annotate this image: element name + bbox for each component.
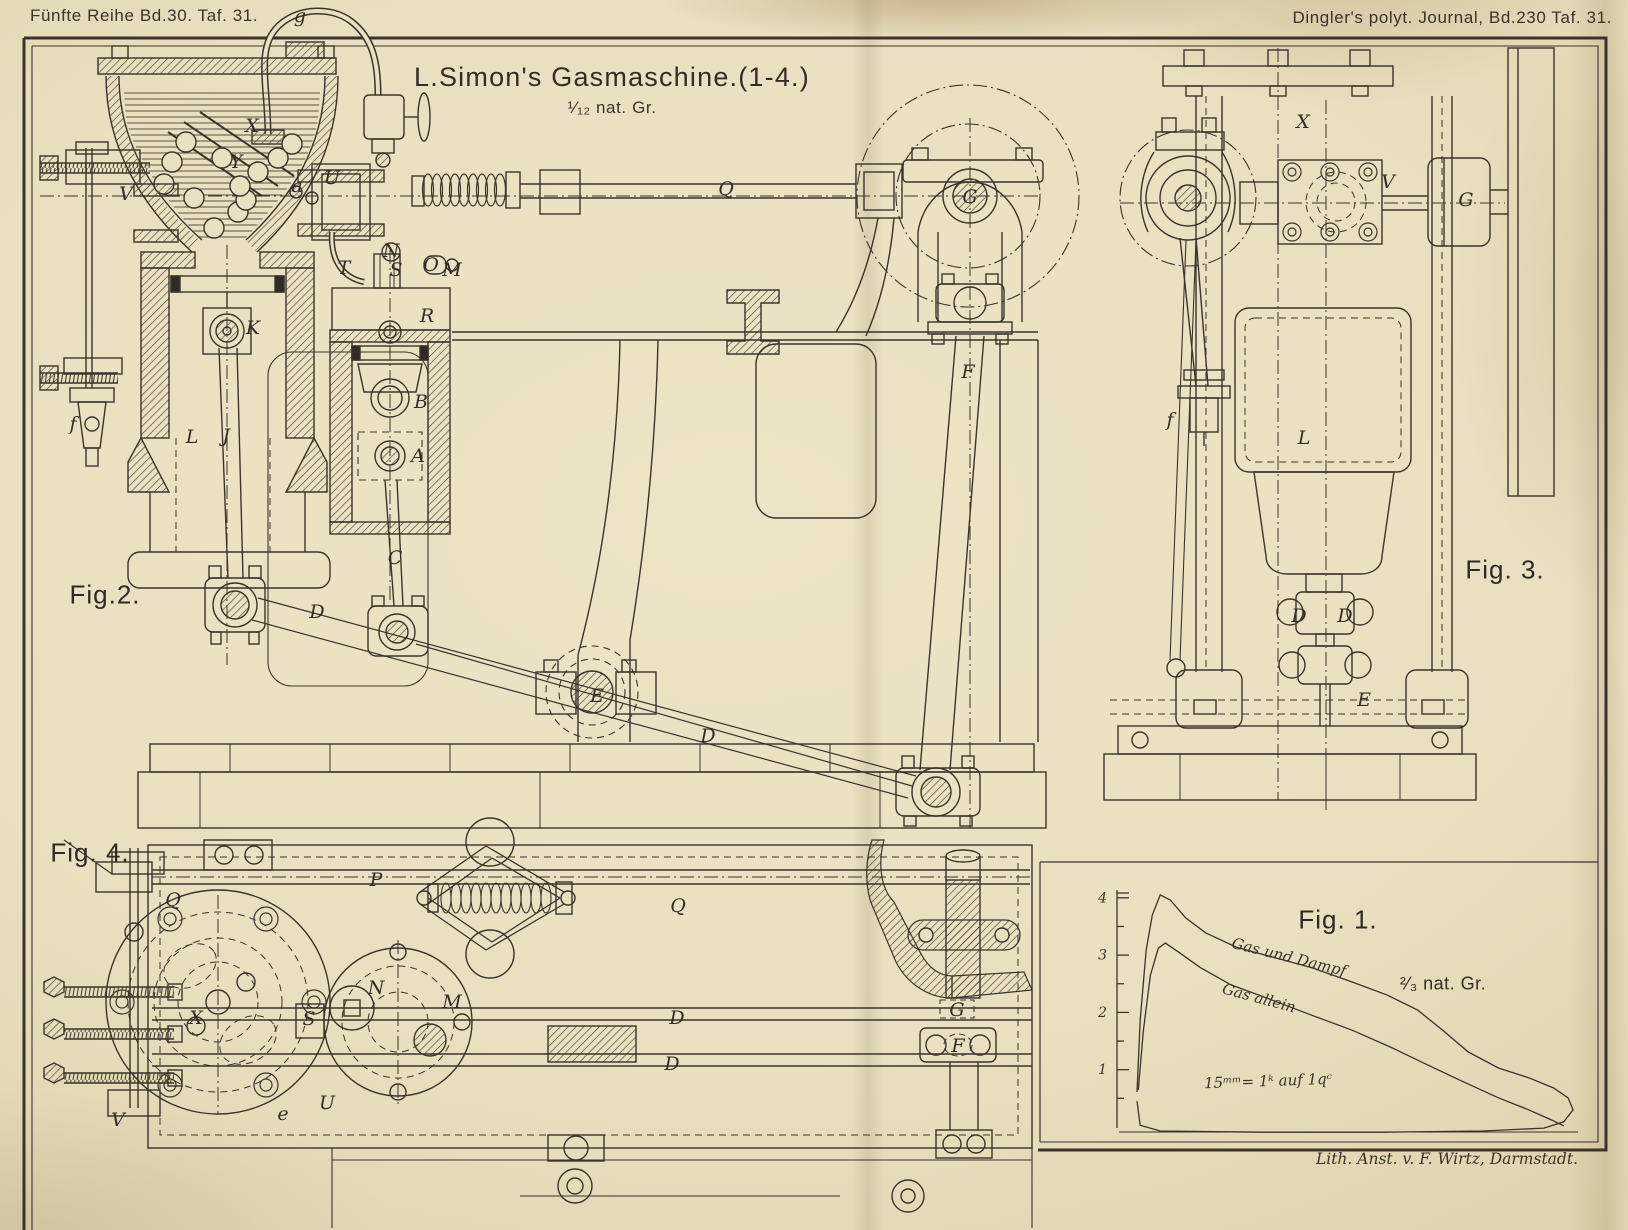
part-label-fig2-T: T (338, 257, 351, 279)
part-label-fig4-N: N (368, 977, 385, 999)
part-label-fig2-g: g (294, 5, 306, 27)
text-layer: Fünfte Reihe Bd.30. Taf. 31. Dingler's p… (0, 0, 1628, 1230)
header-left: Fünfte Reihe Bd.30. Taf. 31. (30, 6, 258, 26)
part-label-fig3-V: V (1381, 171, 1395, 193)
part-label-fig4-S: S (302, 1008, 315, 1030)
part-label-fig2-L: L (186, 426, 199, 448)
part-label-fig3-L: L (1298, 427, 1311, 449)
part-label-fig2-J: J (222, 425, 230, 447)
figure-label-fig1: Fig. 1. (1298, 905, 1377, 936)
part-label-fig3-f: f (1166, 409, 1173, 431)
part-label-fig2-S: S (389, 259, 402, 281)
part-label-fig2-Q: Q (718, 178, 734, 200)
part-label-fig2-F: F (961, 361, 974, 383)
part-label-fig2-V: V (119, 183, 133, 205)
part-label-fig2-C: C (388, 547, 403, 569)
part-label-fig4-e: e (277, 1103, 288, 1125)
fig1-pressure-note: 15ᵐᵐ= 1ᵏ auf 1qᶜ (1204, 1070, 1333, 1092)
part-label-fig2-G: G (962, 186, 977, 208)
plate-title-scale: ¹⁄₁₂ nat. Gr. (567, 98, 656, 118)
part-label-fig2-M: M (442, 259, 461, 281)
part-label-fig4-Q: Q (165, 889, 181, 911)
curve-label-0: Gas und Dampf (1230, 934, 1348, 980)
lithograph-plate: { "plate": { "header_left": "Fünfte Reih… (0, 0, 1628, 1230)
part-label-fig3-E: E (1357, 689, 1371, 711)
part-label-fig3-X: X (1296, 111, 1310, 133)
part-label-fig3-D: D (1291, 605, 1306, 627)
header-right: Dingler's polyt. Journal, Bd.230 Taf. 31… (1292, 8, 1612, 28)
part-label-fig2-R: R (420, 305, 434, 327)
part-label-fig2-a: a (291, 175, 302, 197)
curve-label-1: Gas allein (1220, 980, 1297, 1017)
part-label-fig4-Q: Q (670, 895, 686, 917)
part-label-fig4-D: D (669, 1007, 684, 1029)
part-label-fig3-D: D (1337, 605, 1352, 627)
part-label-fig2-f: f (69, 413, 76, 435)
part-label-fig2-A: A (411, 445, 425, 467)
part-label-fig4-X: X (189, 1007, 203, 1029)
part-label-fig4-P: P (370, 869, 383, 891)
part-label-fig3-G: G (1458, 189, 1473, 211)
part-label-fig2-B: B (414, 391, 428, 413)
part-label-fig4-U: U (319, 1092, 335, 1114)
part-label-fig2-E: E (590, 685, 604, 707)
part-label-fig2-D: D (700, 725, 715, 747)
part-label-fig2-U: U (324, 167, 340, 189)
part-label-fig4-F: F (951, 1035, 964, 1057)
part-label-fig2-K: K (246, 317, 260, 339)
part-label-fig2-Y: Y (230, 151, 243, 173)
part-label-fig4-M: M (442, 991, 461, 1013)
part-label-fig4-D: D (664, 1053, 679, 1075)
part-label-fig4-G: G (949, 999, 964, 1021)
plate-title: L.Simon's Gasmaschine.(1-4.) (414, 62, 810, 93)
figure-label-fig3: Fig. 3. (1465, 555, 1544, 586)
part-label-fig4-V: V (111, 1109, 125, 1131)
fig1-scale-note: ²⁄₃ nat. Gr. (1400, 974, 1486, 995)
figure-label-fig2: Fig.2. (69, 580, 140, 611)
figure-label-fig4: Fig. 4. (50, 838, 129, 869)
part-label-fig2-X: X (245, 115, 259, 137)
lithographer-credit: Lith. Anst. v. F. Wirtz, Darmstadt. (1316, 1150, 1578, 1168)
part-label-fig2-D: D (309, 601, 324, 623)
part-label-fig2-O: O (423, 254, 439, 276)
